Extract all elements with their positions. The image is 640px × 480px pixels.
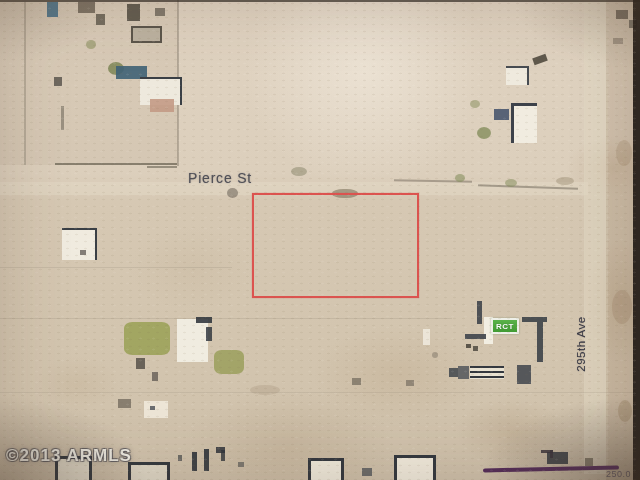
boundary-line <box>0 267 232 268</box>
parcel-outline <box>252 193 419 298</box>
building-dark <box>192 452 197 471</box>
street-label-295th-ave: 295th Ave <box>575 299 591 389</box>
building-dark <box>47 2 58 17</box>
building-dark <box>78 2 95 13</box>
boundary-line <box>24 2 26 165</box>
vegetation <box>214 350 244 374</box>
annotation-mark <box>550 450 553 458</box>
ground-smudge <box>612 290 632 324</box>
boundary-line <box>0 318 452 319</box>
building-dark <box>616 10 628 19</box>
building-dark <box>80 250 86 255</box>
building-dark <box>221 450 225 461</box>
mls-aerial-map-photo: Pierce St 295th Ave RCT 250.0 ©2013 ARML… <box>0 0 640 480</box>
building-dark <box>458 366 469 379</box>
ground-smudge <box>618 400 632 422</box>
building-dark <box>196 317 212 323</box>
building-white <box>511 103 537 143</box>
ground-smudge <box>250 385 280 395</box>
ground-smudge <box>432 352 438 358</box>
vegetation <box>477 127 491 139</box>
vegetation <box>455 174 465 182</box>
building-dark <box>204 449 209 471</box>
fence-line <box>61 106 64 130</box>
building-dark <box>155 8 165 16</box>
building-dark <box>54 77 62 86</box>
building-dark <box>152 372 158 381</box>
building-dark <box>522 317 547 322</box>
building-white <box>423 329 430 345</box>
boundary-line <box>55 163 177 165</box>
building-dark <box>517 365 531 384</box>
building-dark <box>473 346 478 351</box>
building-outlined <box>308 458 344 480</box>
building-dark <box>362 468 372 476</box>
building-dark <box>206 327 212 341</box>
corner-measurement-text: 250.0 <box>606 469 631 479</box>
boundary-line <box>147 166 177 168</box>
building-dark <box>136 358 145 369</box>
building-outlined <box>394 455 436 480</box>
building-dark <box>494 109 509 120</box>
ground-smudge <box>613 38 623 44</box>
vegetation <box>470 100 480 108</box>
tree <box>86 40 96 49</box>
vegetation <box>124 322 170 355</box>
vegetation <box>505 179 517 187</box>
building-dark <box>585 458 593 466</box>
building-dark <box>352 378 361 385</box>
building-dark <box>465 334 486 339</box>
street-label-pierce-st: Pierce St <box>188 170 252 186</box>
building-white <box>506 66 529 85</box>
ground-smudge <box>556 177 574 185</box>
ground-smudge <box>291 167 307 176</box>
building-dark <box>477 301 482 324</box>
photo-edge-right <box>633 0 640 480</box>
building-dark <box>96 14 105 25</box>
building-white <box>144 401 168 418</box>
copyright-watermark: ©2013 ARMLS <box>6 446 132 466</box>
building-dark <box>449 368 458 377</box>
ground-smudge <box>616 140 632 166</box>
building-roof <box>150 99 174 112</box>
building-dark <box>537 322 543 362</box>
ground-smudge <box>227 188 238 198</box>
building-white <box>177 319 208 362</box>
building-dark <box>466 344 471 348</box>
building-dark <box>406 380 414 386</box>
building-dark <box>127 4 140 21</box>
building-white <box>62 228 97 260</box>
building-dark <box>178 455 182 461</box>
rct-map-marker: RCT <box>491 318 519 334</box>
building-dark <box>532 54 548 65</box>
road-band-295th-ave <box>584 0 608 474</box>
building-outlined <box>131 26 162 43</box>
building-dark <box>238 462 244 467</box>
building-outlined <box>128 462 170 480</box>
building-dark <box>118 399 131 408</box>
building-dark <box>150 406 155 410</box>
building-striped <box>470 366 504 379</box>
photo-edge-top <box>0 0 640 2</box>
boundary-line <box>0 392 640 393</box>
